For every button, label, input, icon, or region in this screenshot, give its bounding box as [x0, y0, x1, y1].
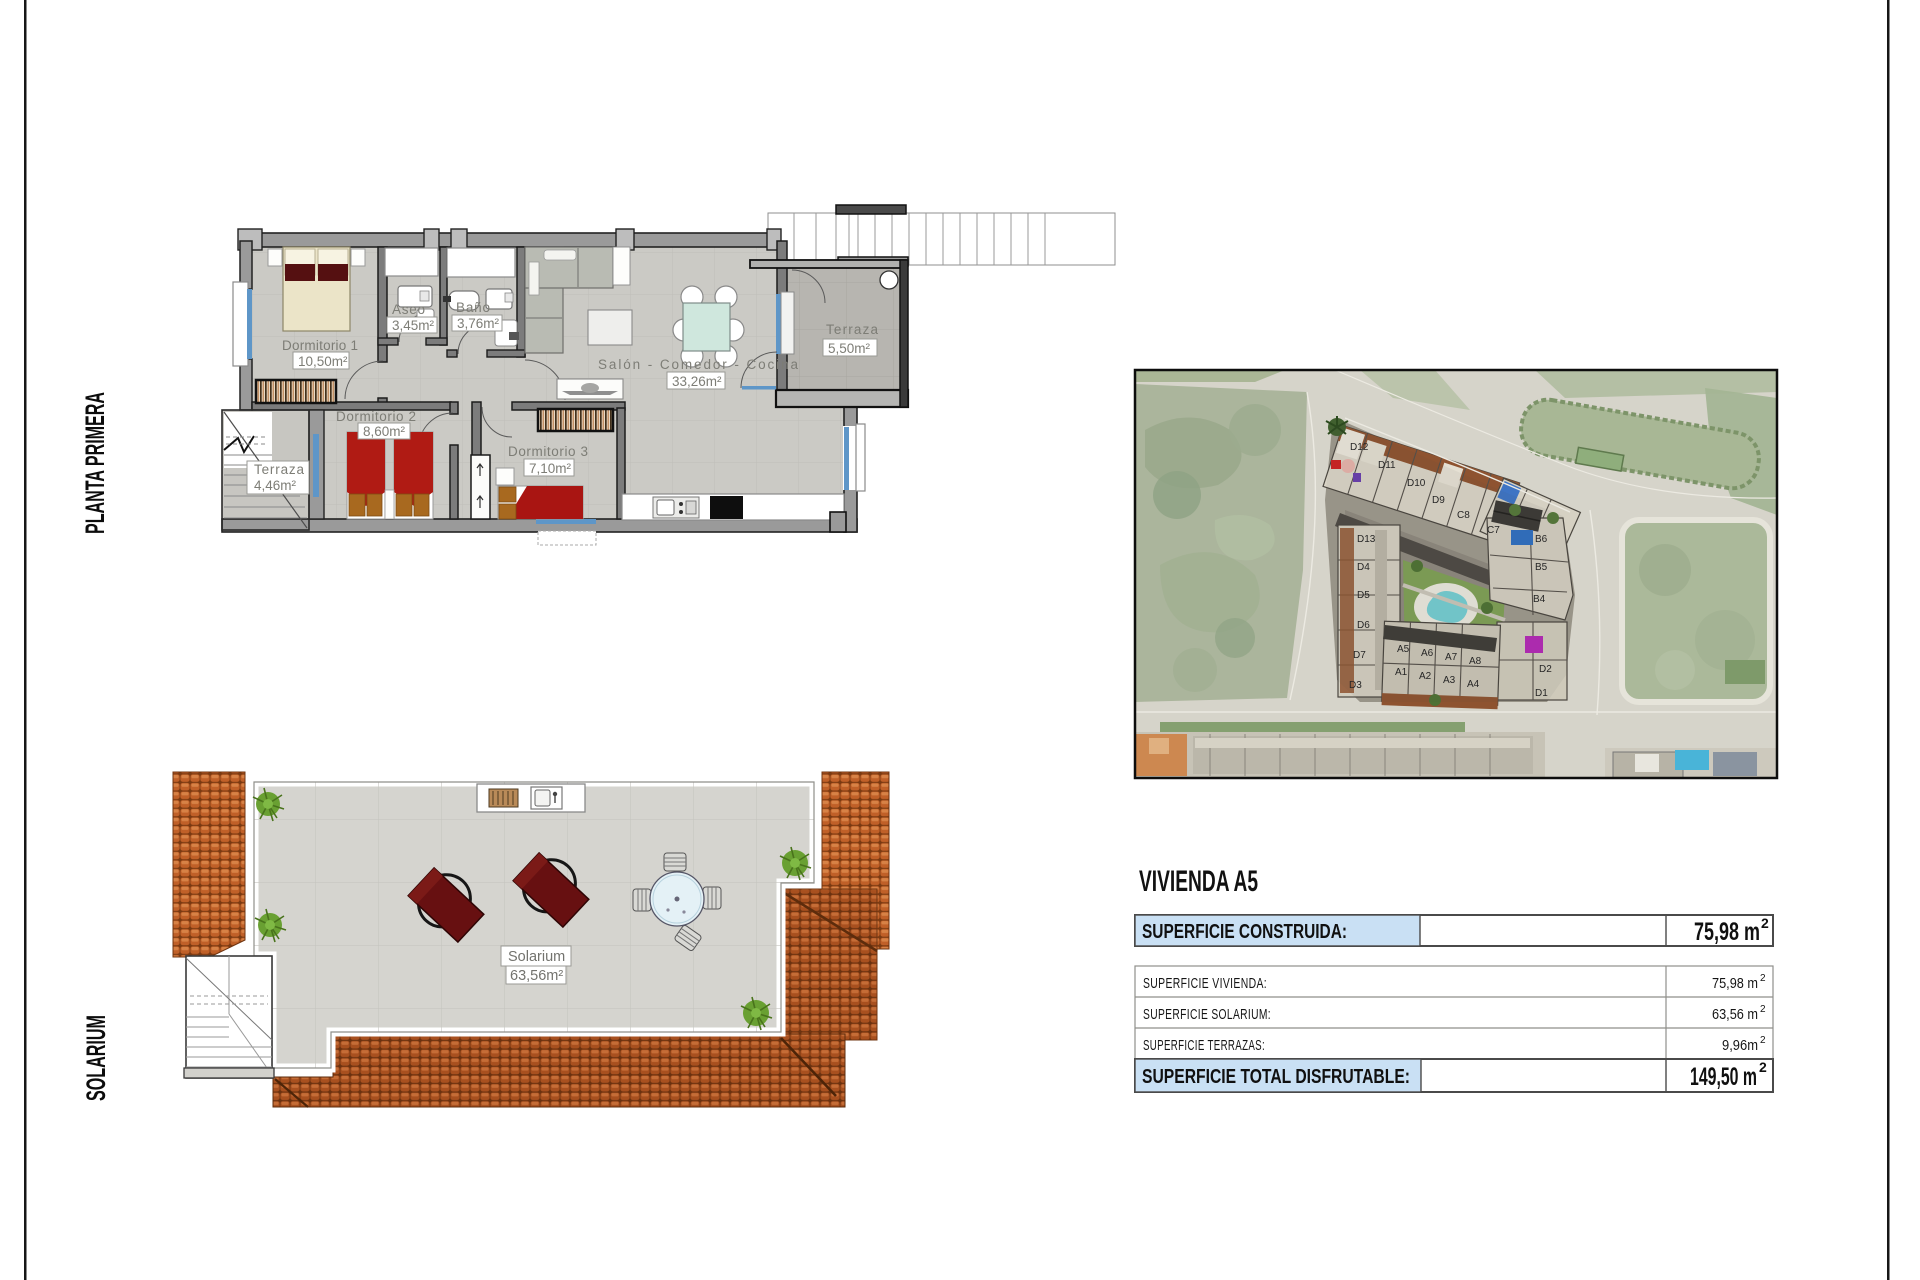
- svg-text:D12: D12: [1350, 442, 1369, 453]
- svg-text:Terraza: Terraza: [254, 462, 304, 477]
- svg-text:2: 2: [1761, 915, 1769, 931]
- svg-text:63,56 m: 63,56 m: [1712, 1007, 1758, 1023]
- svg-text:Salón - Comedor - Cocina: Salón - Comedor - Cocina: [598, 357, 798, 372]
- svg-text:VIVIENDA A5: VIVIENDA A5: [1139, 865, 1258, 898]
- svg-text:2: 2: [1760, 1035, 1766, 1046]
- svg-text:D11: D11: [1378, 460, 1396, 471]
- svg-text:D6: D6: [1357, 620, 1370, 631]
- svg-text:D2: D2: [1539, 664, 1552, 675]
- svg-text:B5: B5: [1535, 562, 1548, 573]
- svg-text:A7: A7: [1445, 652, 1458, 663]
- svg-text:D10: D10: [1407, 478, 1426, 489]
- svg-text:A4: A4: [1467, 679, 1480, 690]
- svg-text:SUPERFICIE VIVIENDA:: SUPERFICIE VIVIENDA:: [1143, 976, 1267, 992]
- svg-text:Dormitorio 1: Dormitorio 1: [282, 338, 358, 353]
- svg-text:9,96m: 9,96m: [1722, 1038, 1758, 1054]
- svg-text:A8: A8: [1469, 656, 1482, 667]
- svg-text:A6: A6: [1421, 648, 1434, 659]
- svg-text:149,50 m: 149,50 m: [1690, 1063, 1757, 1091]
- svg-text:3,45m²: 3,45m²: [392, 318, 435, 333]
- svg-text:C8: C8: [1457, 510, 1470, 521]
- svg-text:A3: A3: [1443, 675, 1456, 686]
- svg-text:D7: D7: [1353, 650, 1366, 661]
- svg-text:4,46m²: 4,46m²: [254, 478, 297, 493]
- svg-text:C7: C7: [1487, 525, 1500, 536]
- svg-text:B4: B4: [1533, 594, 1546, 605]
- svg-text:A5: A5: [1397, 644, 1410, 655]
- svg-text:8,60m²: 8,60m²: [363, 424, 406, 439]
- svg-text:63,56m²: 63,56m²: [510, 968, 563, 984]
- svg-text:SUPERFICIE TOTAL DISFRUTABLE:: SUPERFICIE TOTAL DISFRUTABLE:: [1142, 1066, 1410, 1088]
- svg-text:D9: D9: [1432, 495, 1445, 506]
- svg-text:D4: D4: [1357, 562, 1370, 573]
- svg-text:2: 2: [1759, 1059, 1767, 1075]
- svg-text:Dormitorio 2: Dormitorio 2: [336, 409, 416, 424]
- svg-text:D13: D13: [1357, 534, 1376, 545]
- svg-text:D5: D5: [1357, 590, 1370, 601]
- svg-text:B6: B6: [1535, 534, 1548, 545]
- svg-text:D3: D3: [1349, 680, 1362, 691]
- svg-text:A2: A2: [1419, 671, 1432, 682]
- svg-text:2: 2: [1760, 1004, 1766, 1015]
- svg-text:Aseo: Aseo: [392, 302, 425, 317]
- svg-text:Solarium: Solarium: [508, 949, 565, 965]
- svg-text:10,50m²: 10,50m²: [298, 354, 348, 369]
- svg-text:SUPERFICIE TERRAZAS:: SUPERFICIE TERRAZAS:: [1143, 1038, 1265, 1054]
- svg-text:A1: A1: [1395, 667, 1408, 678]
- svg-text:Baño: Baño: [456, 300, 490, 315]
- svg-text:75,98 m: 75,98 m: [1712, 976, 1758, 992]
- svg-text:Terraza: Terraza: [826, 322, 878, 337]
- svg-text:SUPERFICIE SOLARIUM:: SUPERFICIE SOLARIUM:: [1143, 1007, 1271, 1023]
- svg-text:5,50m²: 5,50m²: [828, 341, 871, 356]
- svg-text:75,98 m: 75,98 m: [1694, 918, 1760, 946]
- svg-text:7,10m²: 7,10m²: [529, 461, 572, 476]
- svg-text:3,76m²: 3,76m²: [457, 316, 500, 331]
- svg-text:2: 2: [1760, 973, 1766, 984]
- svg-text:SUPERFICIE CONSTRUIDA:: SUPERFICIE CONSTRUIDA:: [1142, 921, 1347, 943]
- svg-text:PLANTA PRIMERA: PLANTA PRIMERA: [80, 392, 110, 534]
- svg-text:SOLARIUM: SOLARIUM: [81, 1015, 111, 1101]
- svg-text:33,26m²: 33,26m²: [672, 374, 722, 389]
- svg-text:D1: D1: [1535, 688, 1548, 699]
- svg-text:Dormitorio 3: Dormitorio 3: [508, 444, 588, 459]
